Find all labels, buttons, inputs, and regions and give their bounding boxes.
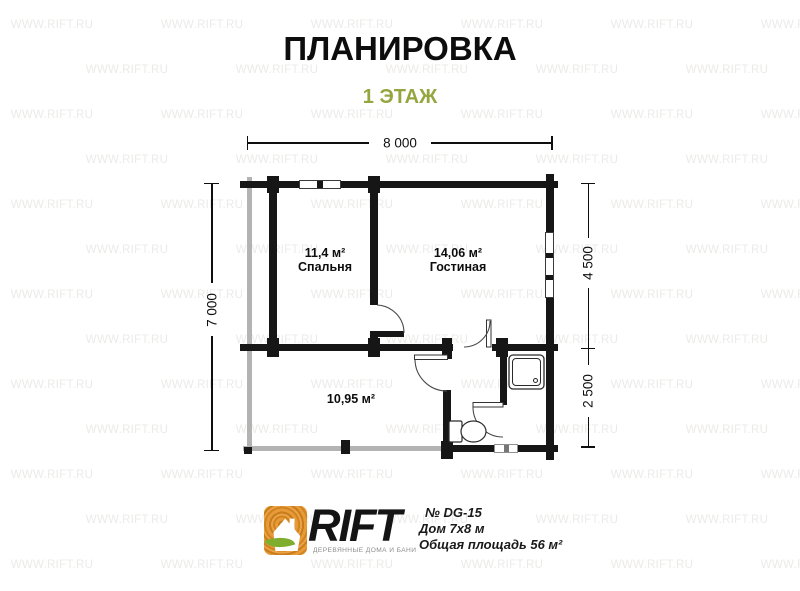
room-name: Спальня [298, 260, 352, 274]
project-number: № DG-15 [419, 505, 562, 521]
room-area: 14,06 м² [430, 246, 487, 260]
room-area: 10,95 м² [327, 392, 375, 406]
room-area: 11,4 м² [298, 246, 352, 260]
toilet-bowl [461, 421, 486, 442]
room-label-terrace: 10,95 м² [327, 392, 375, 406]
shower-fixture [509, 355, 544, 389]
door-arc-bedroom [377, 305, 404, 333]
room-label-living: 14,06 м² Гостиная [430, 246, 487, 274]
total-area: Общая площадь 56 м² [419, 537, 562, 553]
brand-tagline: ДЕРЕВЯННЫЕ ДОМА И БАНИ [313, 547, 416, 554]
door-leaf-terrace [415, 355, 448, 360]
rift-logo [264, 506, 307, 555]
toilet-tank [449, 421, 462, 442]
house-size: Дом 7х8 м [419, 521, 562, 537]
floor-plan-page: WWW.RIFT.RUWWW.RIFT.RUWWW.RIFT.RUWWW.RIF… [0, 0, 800, 591]
room-label-bedroom: 11,4 м² Спальня [298, 246, 352, 274]
project-info: № DG-15 Дом 7х8 м Общая площадь 56 м² [419, 505, 562, 553]
door-arc-terrace [415, 360, 447, 392]
room-name: Гостиная [430, 260, 487, 274]
brand-name: RIFT [308, 502, 400, 550]
plan-overlay [0, 0, 800, 591]
door-leaf-wc [473, 403, 503, 408]
